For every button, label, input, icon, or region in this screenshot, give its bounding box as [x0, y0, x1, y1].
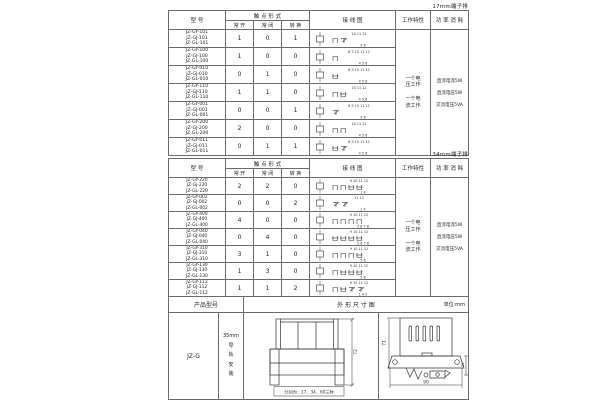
model-cell: JZ-GY-100 JZ-GJ-100 JZ-GL-100	[169, 48, 226, 66]
nc-count: 0	[254, 48, 282, 66]
col-header-no: 常 开	[226, 169, 254, 178]
wiring-diagram: 9 10 11 125 6	[310, 263, 395, 279]
co-count: 1	[282, 30, 310, 48]
side-view-cell: 71 90 35	[379, 313, 469, 400]
col-header-model: 型 号	[169, 159, 226, 178]
wiring-diagram: 9 10 11 121 4 5	[310, 280, 395, 296]
model-cell: JZ-GY-002 JZ-GJ-002 JZ-GL-002	[169, 195, 226, 212]
spec-sheet-page: 17mm端子排 型 号 触 点 形 式 接 线 图 工作特性 功 率 消 耗 常…	[0, 0, 600, 400]
characteristic-voltage: 一个电 压工作	[396, 76, 430, 90]
power-dc-current: 直流电流5W	[431, 78, 468, 84]
svg-text:9 10 11 12: 9 10 11 12	[350, 213, 368, 217]
power-cell: 直流电流5W 直流电压5W 交流电压5VA	[431, 178, 469, 297]
svg-text:9 10 11 12: 9 10 11 12	[350, 179, 368, 183]
col-header-characteristic: 工作特性	[396, 11, 431, 30]
svg-text:8 9 10 11 12: 8 9 10 11 12	[348, 104, 370, 108]
co-count: 0	[282, 48, 310, 66]
nc-count: 0	[254, 30, 282, 48]
svg-text:8 9 10 11 12: 8 9 10 11 12	[348, 50, 370, 54]
model-cell: JZ-GY-010 JZ-GJ-010 JZ-GL-010	[169, 66, 226, 84]
svg-text:4 5 6: 4 5 6	[359, 61, 368, 65]
svg-text:5 6: 5 6	[360, 258, 365, 262]
front-view-cell: 72 分别为：17、34、60三种	[244, 313, 379, 400]
col-header-nc: 常 闭	[254, 169, 282, 178]
wiring-diagram: 10 11 124 5 6	[310, 85, 395, 101]
front-view-drawing: 72 分别为：17、34、60三种	[254, 313, 369, 397]
co-count: 0	[282, 263, 310, 280]
col-header-co: 转 换	[282, 21, 310, 30]
mount-type-cell: 35mm 导 轨 安 装	[219, 313, 244, 400]
spec-table-17mm: 型 号 触 点 形 式 接 线 图 工作特性 功 率 消 耗 常 开 常 闭 转…	[168, 10, 469, 156]
svg-text:9 10 11 12: 9 10 11 12	[350, 281, 368, 285]
dimension-table: 产品型号 外 形 尺 寸 图 单位:mm JZ-G 35mm 导 轨 安 装	[168, 296, 469, 400]
no-count: 2	[226, 178, 254, 195]
power-ac-voltage: 交流电压5VA	[431, 246, 468, 252]
spec-table-34mm: 型 号 触 点 形 式 接 线 图 工作特性 功 率 消 耗 常 开 常 闭 转…	[168, 158, 469, 297]
nc-count: 0	[254, 102, 282, 120]
no-count: 1	[226, 280, 254, 297]
svg-text:9 10 11 12: 9 10 11 12	[350, 247, 368, 251]
col-header-co: 转 换	[282, 169, 310, 178]
col-header-wiring: 接 线 图	[310, 11, 396, 30]
wiring-diagram: 11 121 4	[310, 195, 395, 211]
co-count: 2	[282, 280, 310, 297]
wiring-diagram: 9 10 11 121 4	[310, 178, 395, 194]
no-count: 4	[226, 212, 254, 229]
svg-text:1 4: 1 4	[360, 190, 365, 194]
wiring-diagram: 9 10 11 125 6 7 8	[310, 229, 395, 245]
nc-count: 3	[254, 263, 282, 280]
characteristic-voltage: 一个电 压工作	[396, 220, 430, 234]
col-header-power: 功 率 消 耗	[431, 159, 469, 178]
nc-count: 0	[254, 195, 282, 212]
svg-text:4 5 6: 4 5 6	[359, 133, 368, 137]
col-header-nc: 常 闭	[254, 21, 282, 30]
width-note: 分别为：17、34、60三种	[284, 389, 334, 396]
model-cell: JZ-GY-220 JZ-GJ-220 JZ-GL-220	[169, 178, 226, 195]
col-header-no: 常 开	[226, 21, 254, 30]
no-count: 3	[226, 246, 254, 263]
front-height-dim: 72	[353, 349, 359, 355]
characteristic-cell: 一个电 压工作 一个电 流工作	[396, 30, 431, 156]
co-count: 0	[282, 84, 310, 102]
terminal-label-17mm: 17mm端子排	[168, 2, 468, 10]
no-count: 1	[226, 48, 254, 66]
col-header-characteristic: 工作特性	[396, 159, 431, 178]
svg-text:10 11 12: 10 11 12	[351, 122, 366, 126]
no-count: 1	[226, 263, 254, 280]
svg-text:9 10 11 12: 9 10 11 12	[350, 264, 368, 268]
wiring-diagram: 8 9 10 11 125 6	[310, 103, 395, 119]
co-count: 0	[282, 178, 310, 195]
svg-text:10 11 12: 10 11 12	[351, 86, 366, 90]
nc-count: 0	[254, 212, 282, 229]
model-cell: JZ-GY-130 JZ-GJ-130 JZ-GL-130	[169, 263, 226, 280]
col-header-contact-form: 触 点 形 式	[226, 159, 310, 169]
no-count: 0	[226, 195, 254, 212]
co-count: 0	[282, 229, 310, 246]
col-header-power: 功 率 消 耗	[431, 11, 469, 30]
wiring-diagram: 8 9 10 11 124 5 6	[310, 67, 395, 83]
col-header-model: 型 号	[169, 11, 226, 30]
model-cell: JZ-GY-110 JZ-GJ-110 JZ-GL-110	[169, 84, 226, 102]
wiring-diagram: 9 10 11 125 6	[310, 246, 395, 262]
col-header-wiring: 接 线 图	[310, 159, 396, 178]
model-cell: JZ-GY-112 JZ-GJ-112 JZ-GL-112	[169, 280, 226, 297]
co-count: 0	[282, 212, 310, 229]
svg-text:5 6 7 8: 5 6 7 8	[357, 241, 369, 245]
model-cell: JZ-GY-101 JZ-GJ-101 JZ-GL-101	[169, 30, 226, 48]
no-count: 0	[226, 102, 254, 120]
nc-count: 1	[254, 66, 282, 84]
power-cell: 直流电流5W 直流电压5W 交流电压5VA	[431, 30, 469, 156]
svg-text:4 5 6: 4 5 6	[359, 97, 368, 101]
no-count: 1	[226, 84, 254, 102]
nc-count: 0	[254, 120, 282, 138]
outline-title: 外 形 尺 寸 图	[337, 302, 375, 309]
svg-text:1 4: 1 4	[360, 207, 365, 211]
no-count: 1	[226, 30, 254, 48]
co-count: 0	[282, 120, 310, 138]
unit-label: 单位:mm	[444, 301, 465, 308]
co-count: 1	[282, 102, 310, 120]
svg-text:5 6: 5 6	[360, 43, 365, 47]
col-header-contact-form: 触 点 形 式	[226, 11, 310, 21]
svg-text:9 10 11 12: 9 10 11 12	[350, 230, 368, 234]
wiring-diagram: 10 11 124 5 6	[310, 121, 395, 137]
model-cell: JZ-GY-400 JZ-GJ-400 JZ-GL-400	[169, 212, 226, 229]
wiring-diagram: 10 11 125 6	[310, 31, 395, 47]
nc-count: 1	[254, 246, 282, 263]
col-header-outline: 外 形 尺 寸 图 单位:mm	[244, 297, 469, 313]
co-count: 0	[282, 246, 310, 263]
nc-count: 1	[254, 280, 282, 297]
model-cell: JZ-GY-310 JZ-GJ-310 JZ-GL-310	[169, 246, 226, 263]
characteristic-cell: 一个电 压工作 一个电 流工作	[396, 178, 431, 297]
model-cell: JZ-GY-001 JZ-GJ-001 JZ-GL-001	[169, 102, 226, 120]
side-height-dim: 71	[381, 340, 387, 346]
power-dc-current: 直流电流5W	[431, 222, 468, 228]
svg-text:11 12: 11 12	[354, 196, 364, 200]
no-count: 0	[226, 66, 254, 84]
product-model-cell: JZ-G	[169, 313, 219, 400]
power-dc-voltage: 直流电压5W	[431, 90, 468, 96]
svg-text:4 5 6: 4 5 6	[359, 79, 368, 83]
wiring-diagram: 8 9 10 11 124 5 6	[310, 49, 395, 65]
nc-count: 2	[254, 178, 282, 195]
terminal-label-34mm: 34mm端子排	[168, 150, 468, 158]
svg-text:8 9 10 11 12: 8 9 10 11 12	[348, 68, 370, 72]
nc-count: 4	[254, 229, 282, 246]
characteristic-current: 一个电 流工作	[396, 241, 430, 255]
power-dc-voltage: 直流电压5W	[431, 234, 468, 240]
power-ac-voltage: 交流电压5VA	[431, 102, 468, 108]
col-header-product-model: 产品型号	[169, 297, 244, 313]
nc-count: 1	[254, 84, 282, 102]
svg-text:10 11 12: 10 11 12	[351, 32, 366, 36]
svg-text:8 9 10 11 12: 8 9 10 11 12	[348, 140, 370, 144]
characteristic-current: 一个电 流工作	[396, 96, 430, 110]
no-count: 0	[226, 229, 254, 246]
svg-text:5 6 7 8: 5 6 7 8	[357, 224, 369, 228]
co-count: 2	[282, 195, 310, 212]
model-cell: JZ-GY-200 JZ-GJ-200 JZ-GL-200	[169, 120, 226, 138]
side-view-drawing: 71 90 35	[380, 313, 468, 397]
wiring-diagram: 9 10 11 125 6 7 8	[310, 212, 395, 228]
model-cell: JZ-GY-040 JZ-GJ-040 JZ-GL-040	[169, 229, 226, 246]
co-count: 0	[282, 66, 310, 84]
no-count: 2	[226, 120, 254, 138]
rail-height-dim: 35	[460, 362, 465, 367]
side-width-dim: 90	[423, 380, 429, 386]
svg-text:5 6: 5 6	[360, 115, 365, 119]
svg-text:5 6: 5 6	[360, 275, 365, 279]
